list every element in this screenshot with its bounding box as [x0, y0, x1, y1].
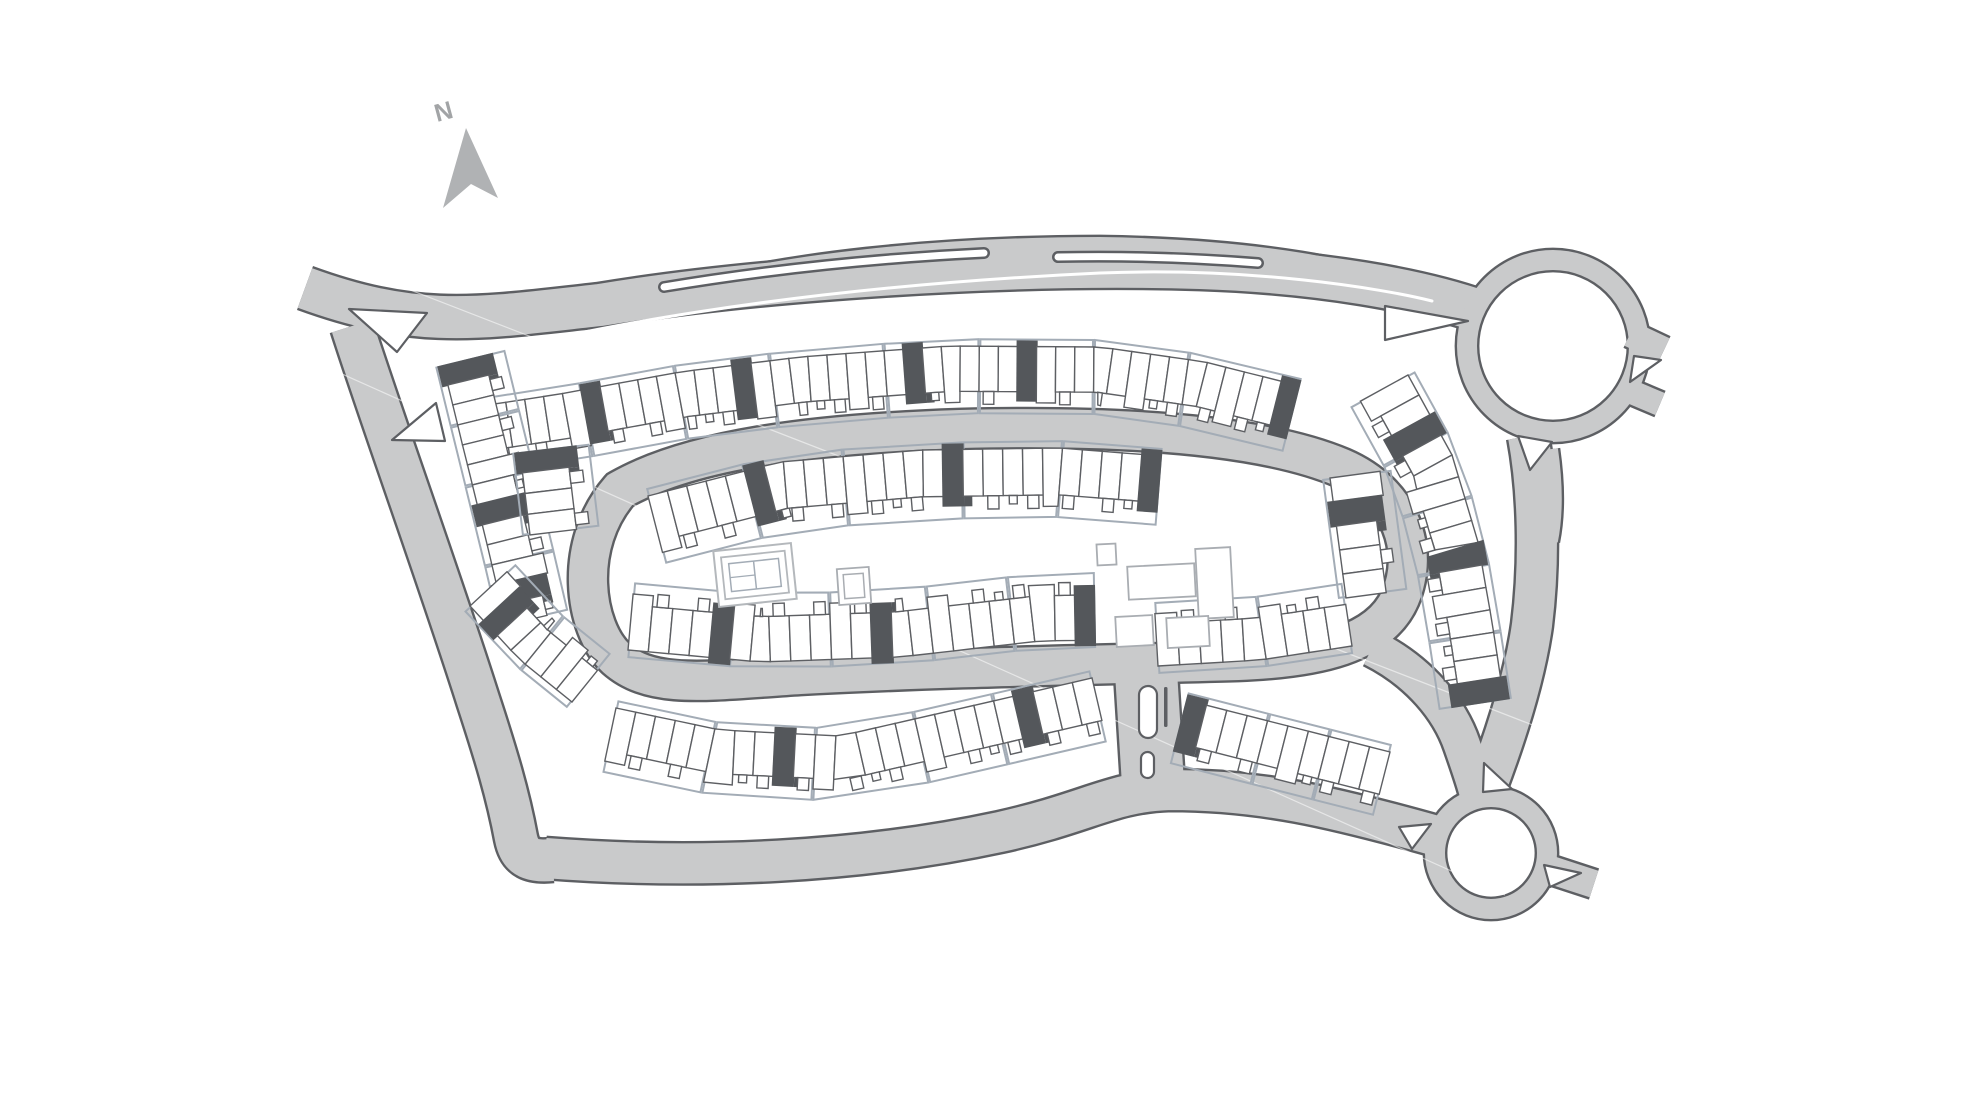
- house-extension: [668, 764, 682, 778]
- house-unit: [1003, 449, 1024, 496]
- house-extension: [1306, 597, 1320, 611]
- median-pill-1: [1141, 752, 1154, 778]
- house-porch: [760, 609, 762, 617]
- house-extension: [683, 533, 697, 549]
- house-unit: [903, 450, 924, 498]
- house-extension: [698, 598, 711, 612]
- house-extension: [799, 402, 808, 416]
- house-extension: [757, 776, 769, 789]
- house-extension: [629, 756, 643, 770]
- site-plan-map: N: [0, 0, 1980, 1115]
- house-extension: [1428, 577, 1442, 592]
- house-extension: [911, 497, 923, 511]
- house-unit: [1036, 347, 1055, 403]
- house-extension: [612, 429, 625, 444]
- house-porch: [1418, 518, 1428, 529]
- house-extension: [983, 392, 994, 405]
- house-extension: [1197, 408, 1211, 423]
- house-porch: [931, 392, 939, 401]
- house-unit: [850, 613, 872, 659]
- house-extension: [871, 500, 883, 514]
- house-unit: [789, 615, 811, 661]
- house-unit: [960, 346, 979, 391]
- house-unit: [750, 616, 770, 662]
- south-roundabout: [1435, 797, 1547, 909]
- house-porch: [782, 508, 792, 518]
- house-extension: [873, 396, 885, 410]
- house-extension: [832, 504, 844, 518]
- house-unit: [1055, 347, 1074, 392]
- house-extension: [1166, 402, 1178, 416]
- amenity-garden-pad: [837, 567, 871, 605]
- highlight-unit: [1016, 340, 1037, 401]
- road-south-road: [545, 790, 1440, 863]
- house-extension: [968, 749, 982, 764]
- median-stick: [1164, 687, 1168, 727]
- house-extension: [722, 523, 736, 539]
- house-unit: [793, 734, 815, 779]
- house-extension: [723, 411, 735, 425]
- house-extension: [1360, 790, 1374, 805]
- house-extension: [529, 537, 543, 551]
- north-label: N: [431, 96, 457, 128]
- house-porch: [1302, 775, 1312, 785]
- highlight-unit: [942, 443, 965, 506]
- amenity-lodge-2: [1166, 616, 1210, 648]
- lodge-2-outline: [1166, 616, 1210, 648]
- house-extension: [988, 496, 999, 509]
- house-extension: [657, 595, 670, 609]
- house-porch: [893, 499, 902, 508]
- house-unit: [1075, 347, 1094, 392]
- house-porch: [1009, 495, 1017, 504]
- north-arrow-icon: [443, 128, 498, 208]
- house-extension: [1381, 548, 1394, 563]
- apartment-block-outline: [1195, 547, 1234, 619]
- house-unit: [1221, 619, 1245, 662]
- house-porch: [817, 401, 825, 410]
- house-extension: [889, 767, 903, 782]
- house-unit: [830, 603, 852, 660]
- road-east-road-bulge: [1545, 450, 1549, 540]
- house-porch: [994, 592, 1003, 601]
- house-extension: [1419, 538, 1434, 554]
- house-unit: [1023, 448, 1044, 495]
- house-porch: [871, 772, 881, 782]
- house-extension: [1234, 417, 1248, 432]
- house-extension: [792, 507, 804, 521]
- house-extension: [1008, 740, 1022, 755]
- house-extension: [500, 417, 514, 431]
- house-porch: [1149, 400, 1158, 409]
- house-unit: [810, 614, 832, 660]
- house-extension: [773, 603, 785, 616]
- house-extension: [687, 416, 697, 430]
- house-extension: [850, 776, 864, 791]
- house-extension: [1197, 749, 1212, 764]
- median-pill-0: [1139, 686, 1157, 738]
- house-extension: [1436, 622, 1450, 636]
- lodge-1-outline: [1115, 615, 1154, 647]
- house-extension: [570, 470, 585, 483]
- house-extension: [797, 778, 809, 791]
- house-unit: [923, 450, 944, 497]
- house-porch: [738, 775, 747, 783]
- highlight-unit: [1074, 585, 1097, 647]
- house-unit: [963, 449, 984, 496]
- house-extension: [1320, 780, 1334, 795]
- house-porch: [1444, 646, 1453, 656]
- house-unit: [1054, 595, 1075, 641]
- community-hall-outline: [1127, 563, 1196, 599]
- amenity-apartment-block: [1195, 547, 1234, 619]
- house-extension: [814, 602, 826, 615]
- house-unit: [769, 616, 791, 662]
- house-unit: [979, 346, 998, 391]
- compass: N: [431, 96, 498, 208]
- house-extension: [1028, 495, 1039, 508]
- house-unit: [998, 346, 1017, 391]
- house-extension: [1047, 731, 1061, 746]
- house-extension: [895, 598, 903, 612]
- garden-pad-outline: [837, 567, 871, 605]
- kiosk-outline: [1096, 544, 1116, 566]
- north-roundabout: [1467, 260, 1639, 432]
- house-porch: [1287, 604, 1297, 613]
- tennis-court: [713, 543, 796, 607]
- house-extension: [834, 399, 846, 413]
- house-extension: [1059, 583, 1071, 596]
- house-porch: [1124, 500, 1133, 509]
- house-extension: [575, 512, 590, 525]
- house-porch: [990, 745, 1000, 755]
- house-extension: [1443, 667, 1457, 682]
- house-unit: [1343, 569, 1386, 598]
- house-unit: [733, 731, 755, 776]
- house-extension: [1087, 722, 1101, 737]
- house-unit: [813, 735, 836, 790]
- amenity-community-hall: [1127, 563, 1196, 599]
- highlight-unit: [869, 602, 894, 664]
- house-extension: [1238, 759, 1253, 774]
- house-porch: [705, 414, 714, 423]
- house-extension: [1102, 498, 1114, 512]
- house-extension: [972, 589, 985, 603]
- amenity-lodge-1: [1115, 615, 1154, 647]
- house-porch: [1255, 422, 1264, 432]
- house-unit: [983, 449, 1004, 496]
- house-extension: [1098, 392, 1103, 406]
- house-extension: [1060, 392, 1071, 405]
- house-unit: [941, 346, 960, 403]
- house-extension: [650, 422, 663, 437]
- amenity-kiosk: [1096, 544, 1116, 566]
- house-extension: [490, 377, 504, 391]
- house-extension: [1062, 495, 1074, 509]
- house-extension: [1012, 585, 1025, 599]
- house-unit: [753, 732, 775, 777]
- site-plan: N: [0, 0, 1980, 1115]
